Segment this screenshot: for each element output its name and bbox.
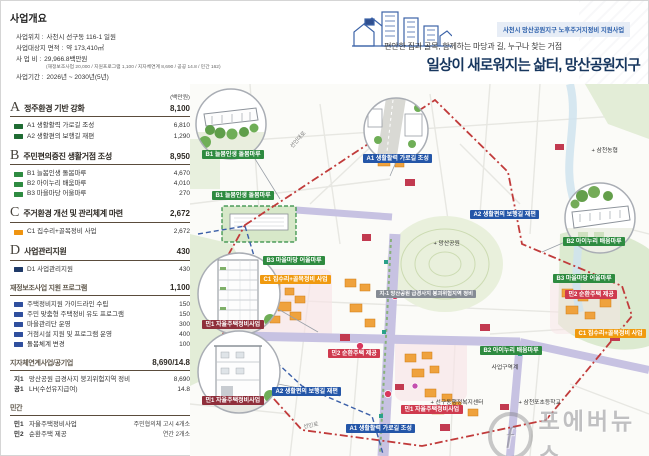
map-label: C1 집수리+골목정비 사업	[575, 329, 646, 338]
item-tag-icon	[14, 332, 23, 337]
budget-item: 민2순환주택 제공연간 2개소	[10, 430, 190, 440]
section-total: 430	[177, 247, 190, 256]
budget-item: 공1LH(수선유지급여)14.8	[10, 385, 190, 395]
item-value: 100	[173, 340, 190, 350]
budget-section-linked: 지자체연계사업/공기업8,690/14.8 지1망산공원 급경사지 붕괴위험지역…	[10, 358, 190, 395]
item-tag-icon	[14, 134, 23, 139]
section-total: 2,672	[170, 209, 190, 218]
legend-boundary-label: 사업구역계	[488, 364, 522, 373]
cost-breakdown-note: (재정보조사업 20,000 / 지원프로그램 1,100 / 지자체연계 8,…	[10, 65, 190, 72]
section-title: 민간	[10, 403, 22, 413]
item-value: 300	[173, 320, 190, 330]
map-label: 민2 순환주택 제공	[328, 349, 380, 358]
section-letter: A	[10, 102, 20, 115]
budget-item: C1 집수리+골목정비 사업2,672	[10, 227, 190, 237]
map-label: B2 아이누리 배움마루	[480, 346, 542, 355]
item-tag-icon	[14, 230, 23, 235]
overview-row: 사업위치 :사천시 선구동 116-1 일원	[10, 32, 190, 43]
item-value: 14.8	[171, 385, 190, 395]
news-watermark: ƒ 포에버뉴스	[488, 402, 649, 456]
budget-item: 지1망산공원 급경사지 붕괴위험지역 정비8,690	[10, 375, 190, 385]
section-title: 사업관리지원	[24, 246, 66, 257]
section-letter: D	[10, 245, 20, 258]
map-label: B1 늘봄인생 돌봄마루	[212, 191, 274, 200]
item-label: 자율주택정비사업	[29, 420, 77, 430]
item-value: 연간 2개소	[157, 431, 190, 440]
map-label: B3 마을마당 어울마루	[553, 274, 615, 283]
map-label: A1 생활활력 가로길 조성	[363, 154, 432, 163]
overview-value: 2026년 ~ 2030년(5년)	[47, 72, 109, 83]
budget-section-d: D사업관리지원430 D1 사업관리지원430	[10, 245, 190, 275]
item-label: 순환주택 제공	[29, 430, 67, 440]
item-label: 주택정비지원 가이드라인 수립	[27, 300, 108, 310]
overview-label: 사 업 비 :	[16, 54, 41, 65]
page-title: 일상이 새로워지는 삶터, 망산공원지구	[388, 54, 640, 75]
budget-unit: (백만원)	[10, 92, 190, 101]
watermark-text: 포에버뉴스	[539, 402, 649, 456]
item-tag-icon	[14, 172, 23, 177]
section-letter: B	[10, 150, 19, 163]
budget-item: D1 사업관리지원430	[10, 265, 190, 275]
item-value: 1,290	[168, 132, 190, 142]
item-label: LH(수선유지급여)	[29, 385, 78, 395]
section-total: 8,100	[170, 104, 190, 113]
item-label: 돌봄체계 변경	[27, 340, 65, 350]
poi-label: + 삼천농협	[588, 147, 621, 156]
section-title: 주거환경 개선 및 관리체계 마련	[23, 208, 122, 219]
item-label: A2 생활편의 보행길 재편	[27, 132, 94, 142]
item-value: 430	[173, 265, 190, 275]
map-label: B2 아이누리 배움마루	[563, 237, 625, 246]
section-title: 주민편의증진 생활거점 조성	[23, 151, 112, 162]
overview-label: 사업기간 :	[16, 72, 44, 83]
map-label: 지-1 망산공원 급경사지 붕괴위험지역 정비	[376, 290, 476, 298]
item-label: A1 생활활력 가로길 조성	[27, 121, 94, 131]
item-label: D1 사업관리지원	[27, 265, 73, 275]
map-label: 민1 자율주택정비사업	[202, 396, 264, 405]
item-tag-icon	[14, 182, 23, 187]
item-label: B1 늘봄인생 돌봄마루	[27, 169, 86, 179]
overview-value: 약 173,410㎡	[66, 43, 104, 54]
budget-item: 돌봄체계 변경100	[10, 340, 190, 350]
budget-item: B2 아이누리 배움마루4,010	[10, 179, 190, 189]
section-title: 정주환경 기반 강화	[24, 103, 84, 114]
item-value: 주민협의체 고시 4개소	[128, 421, 190, 430]
forever-news-logo-icon: ƒ	[488, 412, 533, 456]
poi-label: + 선구동행정복지센터	[427, 399, 487, 408]
item-code: 공1	[14, 385, 29, 395]
section-total: 8,950	[170, 152, 190, 161]
item-value: 4,010	[168, 179, 190, 189]
section-letter: C	[10, 207, 19, 220]
overview-row: 사 업 비 :29,966.8백만원	[10, 54, 190, 65]
section-title: 재정보조사업 지원 프로그램	[10, 283, 87, 293]
section-total: 1,100	[170, 283, 190, 292]
map-label: A2 생활편의 보행길 재편	[272, 387, 341, 396]
budget-section-program: 재정보조사업 지원 프로그램1,100 주택정비지원 가이드라인 수립150 주…	[10, 283, 190, 350]
budget-item: A2 생활편의 보행길 재편1,290	[10, 132, 190, 142]
item-tag-icon	[14, 312, 23, 317]
item-value: 4,670	[168, 169, 190, 179]
item-tag-icon	[14, 302, 23, 307]
map-label: 민1 자율주택정비사업	[202, 320, 264, 329]
item-label: 주민 맞춤형 주택정비 유도 프로그램	[27, 310, 124, 320]
map-label: A2 생활편의 보행길 재편	[470, 210, 539, 219]
item-tag-icon	[14, 267, 23, 272]
section-title: 지자체연계사업/공기업	[10, 358, 73, 368]
item-code: 지1	[14, 375, 29, 385]
item-value: 8,690	[168, 375, 190, 385]
overview-row: 사업대상지 면적 :약 173,410㎡	[10, 43, 190, 54]
overview-value: 사천시 선구동 116-1 일원	[47, 32, 116, 43]
budget-item: 주민 맞춤형 주택정비 유도 프로그램150	[10, 310, 190, 320]
budget-item: A1 생활활력 가로길 조성6,810	[10, 121, 190, 131]
map-label: C1 집수리+골목정비 사업	[260, 275, 331, 284]
budget-section-b: B주민편의증진 생활거점 조성8,950 B1 늘봄인생 돌봄마루4,670 B…	[10, 150, 190, 200]
item-tag-icon	[14, 342, 23, 347]
budget-item: 거점시설 지원 및 프로그램 운영400	[10, 330, 190, 340]
budget-section-a: A정주환경 기반 강화8,100 A1 생활활력 가로길 조성6,810 A2 …	[10, 102, 190, 142]
item-value: 150	[173, 310, 190, 320]
map-label: A1 생활활력 가로길 조성	[346, 424, 415, 433]
budget-section-private: 민간 민1자율주택정비사업주민협의체 고시 4개소 민2순환주택 제공연간 2개…	[10, 403, 190, 440]
b1-site	[222, 206, 296, 242]
item-tag-icon	[14, 322, 23, 327]
overview-value: 29,966.8백만원	[44, 54, 87, 65]
budget-item: 주택정비지원 가이드라인 수립150	[10, 300, 190, 310]
poi-label: + 망산공원	[430, 240, 463, 249]
item-value: 6,810	[168, 121, 190, 131]
program-badge: 사천시 망산공원지구 노후주거지정비 지원사업	[497, 22, 630, 37]
budget-section-c: C주거환경 개선 및 관리체계 마련2,672 C1 집수리+골목정비 사업2,…	[10, 207, 190, 237]
item-label: 망산공원 급경사지 붕괴위험지역 정비	[29, 375, 130, 385]
item-label: B3 마을마당 어울마루	[27, 189, 86, 199]
left-panel: 사업개요 사업위치 :사천시 선구동 116-1 일원 사업대상지 면적 :약 …	[10, 8, 190, 448]
item-tag-icon	[14, 192, 23, 197]
budget-item: B1 늘봄인생 돌봄마루4,670	[10, 169, 190, 179]
overview-row: 사업기간 :2026년 ~ 2030년(5년)	[10, 72, 190, 83]
slogan-subtitle: 편안한 집과 골목, 함께하는 마당과 길, 누구나 찾는 거점	[358, 41, 588, 52]
overview-title: 사업개요	[10, 10, 190, 25]
item-label: C1 집수리+골목정비 사업	[27, 227, 97, 237]
item-value: 400	[173, 330, 190, 340]
map-label: B3 마을마당 어울마루	[263, 256, 325, 265]
map-label: 민2 순환주택 제공	[565, 290, 617, 299]
item-label: B2 아이누리 배움마루	[27, 179, 86, 189]
map-label: B1 늘봄인생 돌봄마루	[202, 150, 264, 159]
section-total: 8,690/14.8	[152, 358, 190, 367]
district-map: B1 늘봄인생 돌봄마루 A1 생활활력 가로길 조성 B2 아이누리 배움마루…	[190, 84, 649, 456]
overview-label: 사업대상지 면적 :	[16, 43, 63, 54]
item-value: 270	[173, 189, 190, 199]
overview-label: 사업위치 :	[16, 32, 44, 43]
budget-item: 민1자율주택정비사업주민협의체 고시 4개소	[10, 420, 190, 430]
item-label: 마을관리단 운영	[27, 320, 71, 330]
budget-item: 마을관리단 운영300	[10, 320, 190, 330]
item-tag-icon	[14, 124, 23, 129]
item-label: 거점시설 지원 및 프로그램 운영	[27, 330, 112, 340]
poster-page: 사업개요 사업위치 :사천시 선구동 116-1 일원 사업대상지 면적 :약 …	[0, 0, 649, 456]
item-code: 민2	[14, 430, 29, 440]
item-value: 150	[173, 300, 190, 310]
item-value: 2,672	[168, 227, 190, 237]
item-code: 민1	[14, 420, 29, 430]
budget-item: B3 마을마당 어울마루270	[10, 189, 190, 199]
